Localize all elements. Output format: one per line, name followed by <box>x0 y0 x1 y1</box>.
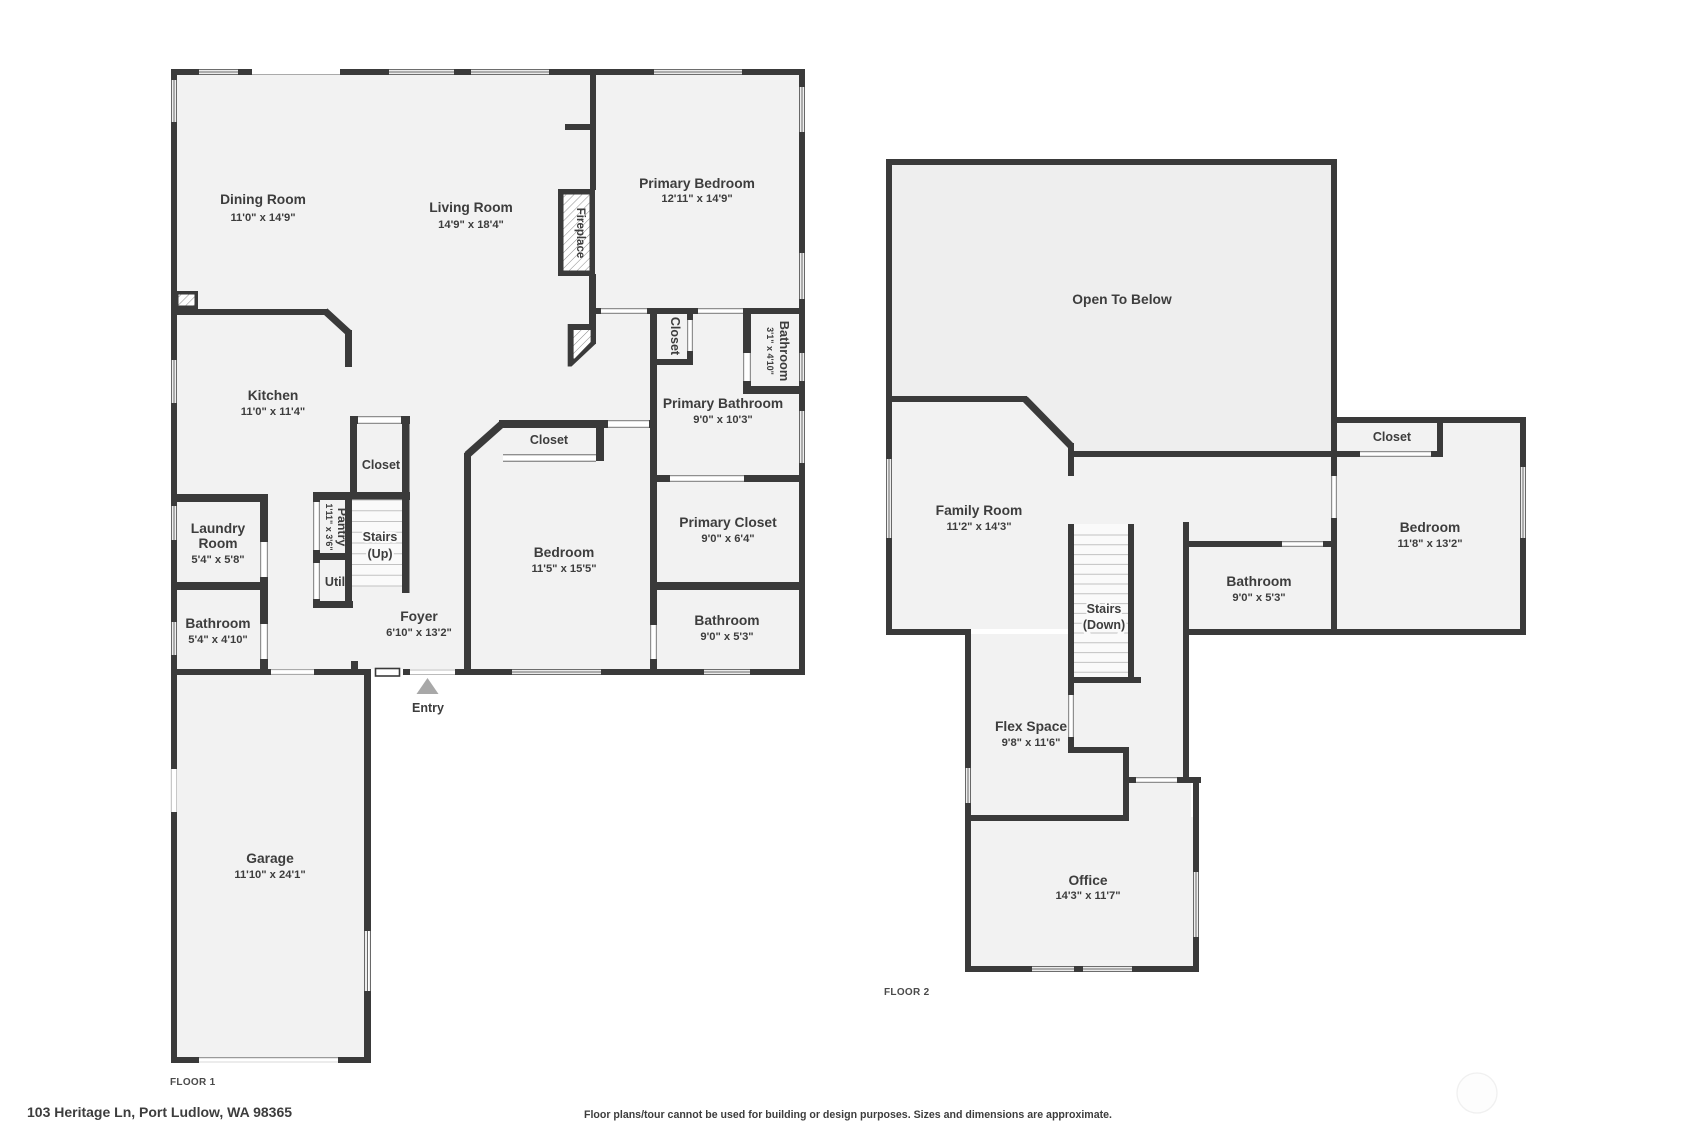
svg-text:11'10" x 24'1": 11'10" x 24'1" <box>234 869 305 881</box>
svg-text:5'4" x 4'10": 5'4" x 4'10" <box>188 634 247 646</box>
svg-text:FLOOR 2: FLOOR 2 <box>884 987 930 998</box>
svg-text:Primary Closet: Primary Closet <box>679 515 777 530</box>
svg-text:(Up): (Up) <box>368 547 393 561</box>
svg-text:Bathroom: Bathroom <box>777 321 792 381</box>
svg-text:5'4" x 5'8": 5'4" x 5'8" <box>191 554 244 566</box>
svg-text:Family Room: Family Room <box>936 503 1023 518</box>
svg-text:Garage: Garage <box>246 851 294 866</box>
svg-text:12'11" x 14'9": 12'11" x 14'9" <box>661 193 732 205</box>
svg-text:Office: Office <box>1068 873 1107 888</box>
svg-text:Floor plans/tour cannot be use: Floor plans/tour cannot be used for buil… <box>584 1109 1112 1121</box>
svg-text:Closet: Closet <box>530 433 569 447</box>
svg-text:103 Heritage Ln, Port Ludlow,: 103 Heritage Ln, Port Ludlow, WA 98365 <box>27 1104 292 1120</box>
svg-text:11'5" x 15'5": 11'5" x 15'5" <box>531 563 596 575</box>
svg-text:Closet: Closet <box>668 317 682 356</box>
svg-text:9'0" x 5'3": 9'0" x 5'3" <box>700 631 753 643</box>
svg-text:Pantry: Pantry <box>335 508 349 547</box>
svg-text:Room: Room <box>198 536 237 551</box>
svg-text:9'8" x 11'6": 9'8" x 11'6" <box>1002 737 1061 749</box>
svg-text:9'0" x 10'3": 9'0" x 10'3" <box>693 414 752 426</box>
svg-text:Bathroom: Bathroom <box>1226 574 1291 589</box>
svg-text:Bedroom: Bedroom <box>534 545 595 560</box>
svg-text:Primary Bedroom: Primary Bedroom <box>639 176 755 191</box>
svg-text:Closet: Closet <box>1373 430 1412 444</box>
svg-text:1'11" x 3'6": 1'11" x 3'6" <box>324 503 334 550</box>
svg-text:Flex Space: Flex Space <box>995 719 1067 734</box>
svg-text:Laundry: Laundry <box>191 521 246 536</box>
svg-text:6'10" x 13'2": 6'10" x 13'2" <box>386 627 452 639</box>
svg-text:11'0" x 11'4": 11'0" x 11'4" <box>241 406 305 418</box>
svg-text:Living Room: Living Room <box>429 200 513 215</box>
svg-text:Fireplace: Fireplace <box>574 208 586 259</box>
svg-text:FLOOR 1: FLOOR 1 <box>170 1077 216 1088</box>
svg-text:9'0" x 6'4": 9'0" x 6'4" <box>701 533 754 545</box>
svg-text:Open To Below: Open To Below <box>1072 292 1172 307</box>
svg-text:Stairs: Stairs <box>363 530 398 544</box>
svg-text:(Down): (Down) <box>1083 618 1125 632</box>
svg-text:Kitchen: Kitchen <box>248 388 299 403</box>
svg-text:Bedroom: Bedroom <box>1400 520 1461 535</box>
svg-text:Dining Room: Dining Room <box>220 192 306 207</box>
svg-text:Bathroom: Bathroom <box>694 613 759 628</box>
svg-text:Util: Util <box>325 575 345 589</box>
svg-text:14'9" x 18'4": 14'9" x 18'4" <box>438 219 504 231</box>
svg-text:3'1" x 4'10": 3'1" x 4'10" <box>765 327 775 375</box>
svg-text:11'2" x 14'3": 11'2" x 14'3" <box>946 521 1011 533</box>
svg-text:Primary Bathroom: Primary Bathroom <box>663 396 783 411</box>
svg-text:11'0" x 14'9": 11'0" x 14'9" <box>230 212 295 224</box>
svg-text:Stairs: Stairs <box>1087 602 1122 616</box>
svg-text:Entry: Entry <box>412 701 444 715</box>
svg-text:11'8" x 13'2": 11'8" x 13'2" <box>1397 538 1462 550</box>
svg-text:9'0" x 5'3": 9'0" x 5'3" <box>1232 592 1285 604</box>
svg-text:Bathroom: Bathroom <box>185 616 250 631</box>
svg-text:Foyer: Foyer <box>400 609 438 624</box>
svg-text:Closet: Closet <box>362 458 401 472</box>
svg-text:14'3" x 11'7": 14'3" x 11'7" <box>1055 890 1120 902</box>
